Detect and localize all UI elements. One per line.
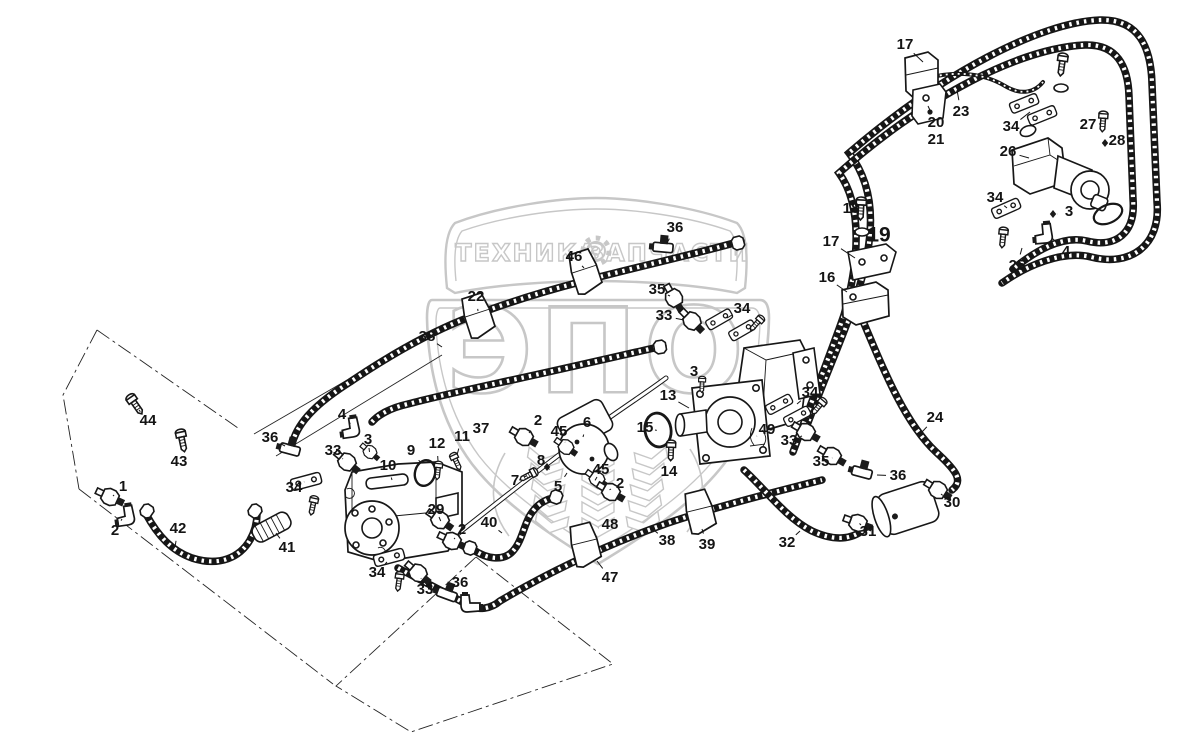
part-label-38: 38: [659, 532, 676, 549]
part-label-20: 20: [928, 114, 945, 131]
part-label-7: 7: [511, 472, 519, 489]
part-label-34: 34: [369, 564, 386, 581]
leader-line-36: [450, 590, 451, 591]
panel-edge: [276, 355, 442, 456]
leader-line-38: [655, 531, 658, 533]
part-label-17: 17: [823, 233, 840, 250]
part-label-29: 29: [428, 501, 445, 518]
part-label-8: 8: [537, 452, 545, 469]
part-label-4: 4: [1062, 243, 1071, 260]
hose-24: [855, 302, 958, 490]
part-label-45: 45: [551, 423, 568, 440]
leader-line-10: [391, 478, 392, 480]
part-label-33: 33: [656, 307, 673, 324]
part-label-3: 3: [690, 363, 698, 380]
part-label-39: 39: [699, 536, 716, 553]
part-label-5: 5: [554, 478, 562, 495]
part-label-33: 33: [417, 581, 434, 598]
part-label-10: 10: [380, 457, 397, 474]
part-label-4: 4: [338, 406, 347, 423]
leader-line-6: [583, 435, 584, 437]
part-label-3: 3: [1065, 203, 1073, 220]
pin-28: [1102, 139, 1108, 147]
bolt-top: [1055, 52, 1068, 76]
leader-line-33: [342, 458, 343, 459]
leader-line-11: [457, 449, 459, 455]
part-label-28: 28: [1109, 132, 1126, 149]
part-label-47: 47: [602, 569, 619, 586]
part-label-34: 34: [987, 189, 1004, 206]
part-label-2: 2: [534, 412, 542, 429]
leader-line-40: [499, 530, 502, 533]
leader-line-5: [564, 473, 567, 477]
leader-line-24: [922, 427, 927, 432]
part-label-9: 9: [407, 442, 415, 459]
part-label-36: 36: [262, 429, 279, 446]
panel-edge: [97, 330, 238, 428]
part-label-2: 2: [458, 521, 466, 538]
part-label-25: 25: [1009, 257, 1026, 274]
part-label-46: 46: [566, 248, 583, 265]
part-label-12: 12: [429, 435, 446, 452]
part-label-21: 21: [928, 131, 945, 148]
hose-42: [146, 514, 257, 561]
leader-line-2: [454, 538, 455, 539]
part-label-27: 27: [1080, 116, 1097, 133]
part-label-31: 31: [860, 523, 877, 540]
part-label-13: 13: [660, 387, 677, 404]
part-label-33: 33: [781, 432, 798, 449]
part-label-19: 19: [867, 224, 890, 247]
pin-3: [1050, 210, 1056, 218]
part-label-36: 36: [667, 219, 684, 236]
part-label-35: 35: [649, 281, 666, 298]
part-label-49: 49: [759, 421, 776, 438]
part-label-37: 37: [473, 420, 490, 437]
part-label-24: 24: [927, 409, 944, 426]
elbow-4: [1031, 220, 1053, 244]
page-canvas: ТЕХНИКА ЗАПЧАСТИ ЭПО: [0, 0, 1189, 748]
clamp-34: [1009, 93, 1040, 114]
part-label-36: 36: [890, 467, 907, 484]
fitting-36: [275, 434, 303, 457]
part-label-34: 34: [802, 384, 819, 401]
part-label-22: 22: [468, 288, 485, 305]
part-label-36: 36: [452, 574, 469, 591]
part-label-34: 34: [286, 479, 303, 496]
part-label-14: 14: [661, 463, 678, 480]
part-label-23: 23: [953, 103, 970, 120]
part-label-35: 35: [813, 453, 830, 470]
leader-line-33: [800, 436, 802, 437]
part-label-33: 33: [325, 442, 342, 459]
part-label-40: 40: [481, 514, 498, 531]
part-label-44: 44: [140, 412, 157, 429]
part-label-15: 15: [637, 419, 654, 436]
fitting-36: [847, 457, 875, 480]
part-label-26: 26: [1000, 143, 1017, 160]
part-label-43: 43: [171, 453, 188, 470]
bolt-27: [1098, 111, 1108, 132]
part-label-34: 34: [734, 300, 751, 317]
part-label-48: 48: [602, 516, 619, 533]
part-label-32: 32: [779, 534, 796, 551]
part-label-45: 45: [593, 461, 610, 478]
panel-diamond: [336, 557, 613, 732]
part-label-3: 3: [364, 431, 372, 448]
part-label-18: 18: [843, 200, 860, 217]
clamp-39: [682, 488, 717, 535]
pump-10: [345, 462, 462, 562]
part-label-30: 30: [944, 494, 961, 511]
part-label-16: 16: [819, 269, 836, 286]
part-label-42: 42: [170, 520, 187, 537]
panel-edge: [63, 330, 97, 489]
leader-line-32: [796, 531, 800, 535]
part-label-17: 17: [897, 36, 914, 53]
part-label-34: 34: [1003, 118, 1020, 135]
part-label-38: 38: [419, 328, 436, 345]
leader-line-25: [1020, 248, 1022, 254]
part-label-41: 41: [279, 539, 296, 556]
part-label-2: 2: [616, 475, 624, 492]
part-label-11: 11: [454, 428, 470, 445]
part-label-6: 6: [583, 414, 591, 431]
part-label-2: 2: [111, 522, 119, 539]
part-label-1: 1: [119, 478, 127, 495]
hydraulic-parts-diagram: ТЕХНИКА ЗАПЧАСТИ ЭПО: [0, 0, 1189, 748]
